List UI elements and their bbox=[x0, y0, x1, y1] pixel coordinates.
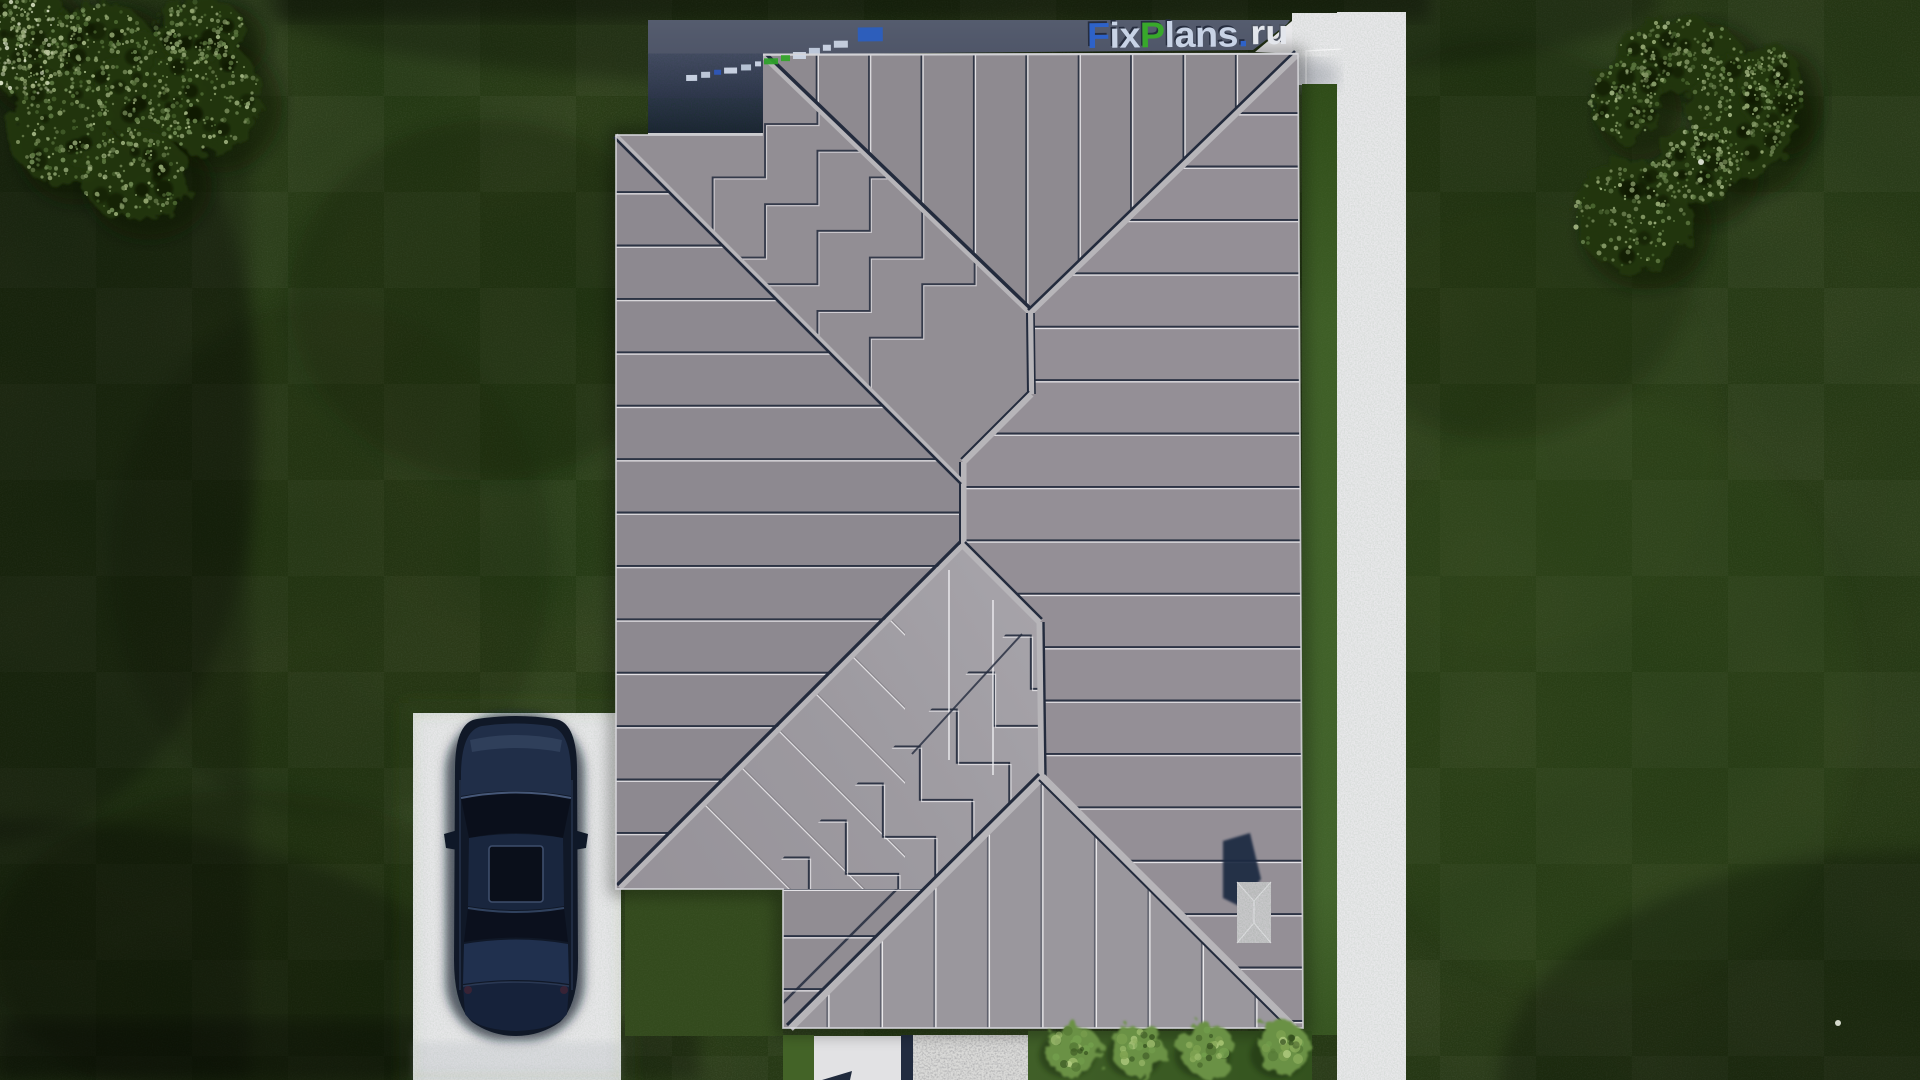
svg-text:ru: ru bbox=[1250, 14, 1288, 52]
svg-text:FixPlans.: FixPlans. bbox=[1087, 13, 1248, 56]
